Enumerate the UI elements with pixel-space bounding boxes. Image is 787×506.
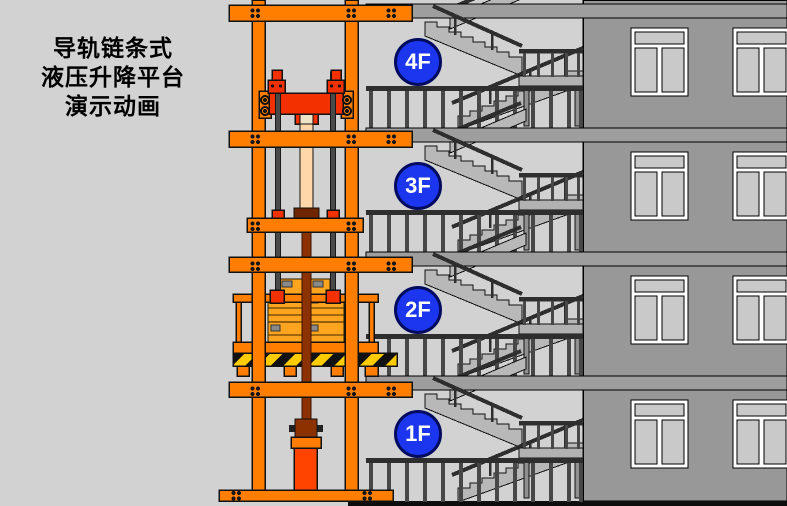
mast-column-left bbox=[252, 0, 265, 501]
cylinder-collar bbox=[294, 208, 319, 218]
chain-clamp bbox=[327, 80, 344, 93]
title-line-2: 液压升降平台 bbox=[10, 63, 216, 92]
floor-badge-label: 2F bbox=[405, 297, 431, 323]
platform-chain-mount bbox=[270, 290, 284, 303]
floor-badge-label: 4F bbox=[405, 49, 431, 75]
piston-fitting bbox=[300, 114, 313, 125]
floor-badge-4f: 4F bbox=[394, 38, 442, 86]
floor-badge-3f: 3F bbox=[394, 162, 442, 210]
title-line-1: 导轨链条式 bbox=[10, 34, 216, 63]
pin-collar bbox=[295, 419, 317, 437]
floor-badge-label: 1F bbox=[405, 421, 431, 447]
floor-badge-label: 3F bbox=[405, 173, 431, 199]
chain-cap bbox=[331, 70, 341, 80]
pin bbox=[289, 425, 295, 432]
platform-chain-mount bbox=[326, 290, 340, 303]
cylinder-body bbox=[294, 448, 317, 491]
cross-beam-short bbox=[247, 218, 363, 232]
pin bbox=[317, 425, 323, 432]
cylinder-flange bbox=[291, 437, 321, 448]
mast-column-right bbox=[345, 0, 358, 501]
cross-beam bbox=[229, 131, 412, 147]
chain-clamp bbox=[268, 80, 285, 93]
floor-badge-1f: 1F bbox=[394, 410, 442, 458]
cross-beam bbox=[229, 5, 412, 21]
title-line-3: 演示动画 bbox=[10, 92, 216, 121]
chain-cap bbox=[272, 70, 282, 80]
lifting-carriage bbox=[259, 91, 353, 118]
base-beam bbox=[219, 490, 393, 501]
demo-title: 导轨链条式 液压升降平台 演示动画 bbox=[10, 34, 216, 121]
floor-badge-2f: 2F bbox=[394, 286, 442, 334]
demo-animation-stage: 导轨链条式 液压升降平台 演示动画 4F 3F 2F 1F bbox=[0, 0, 787, 506]
